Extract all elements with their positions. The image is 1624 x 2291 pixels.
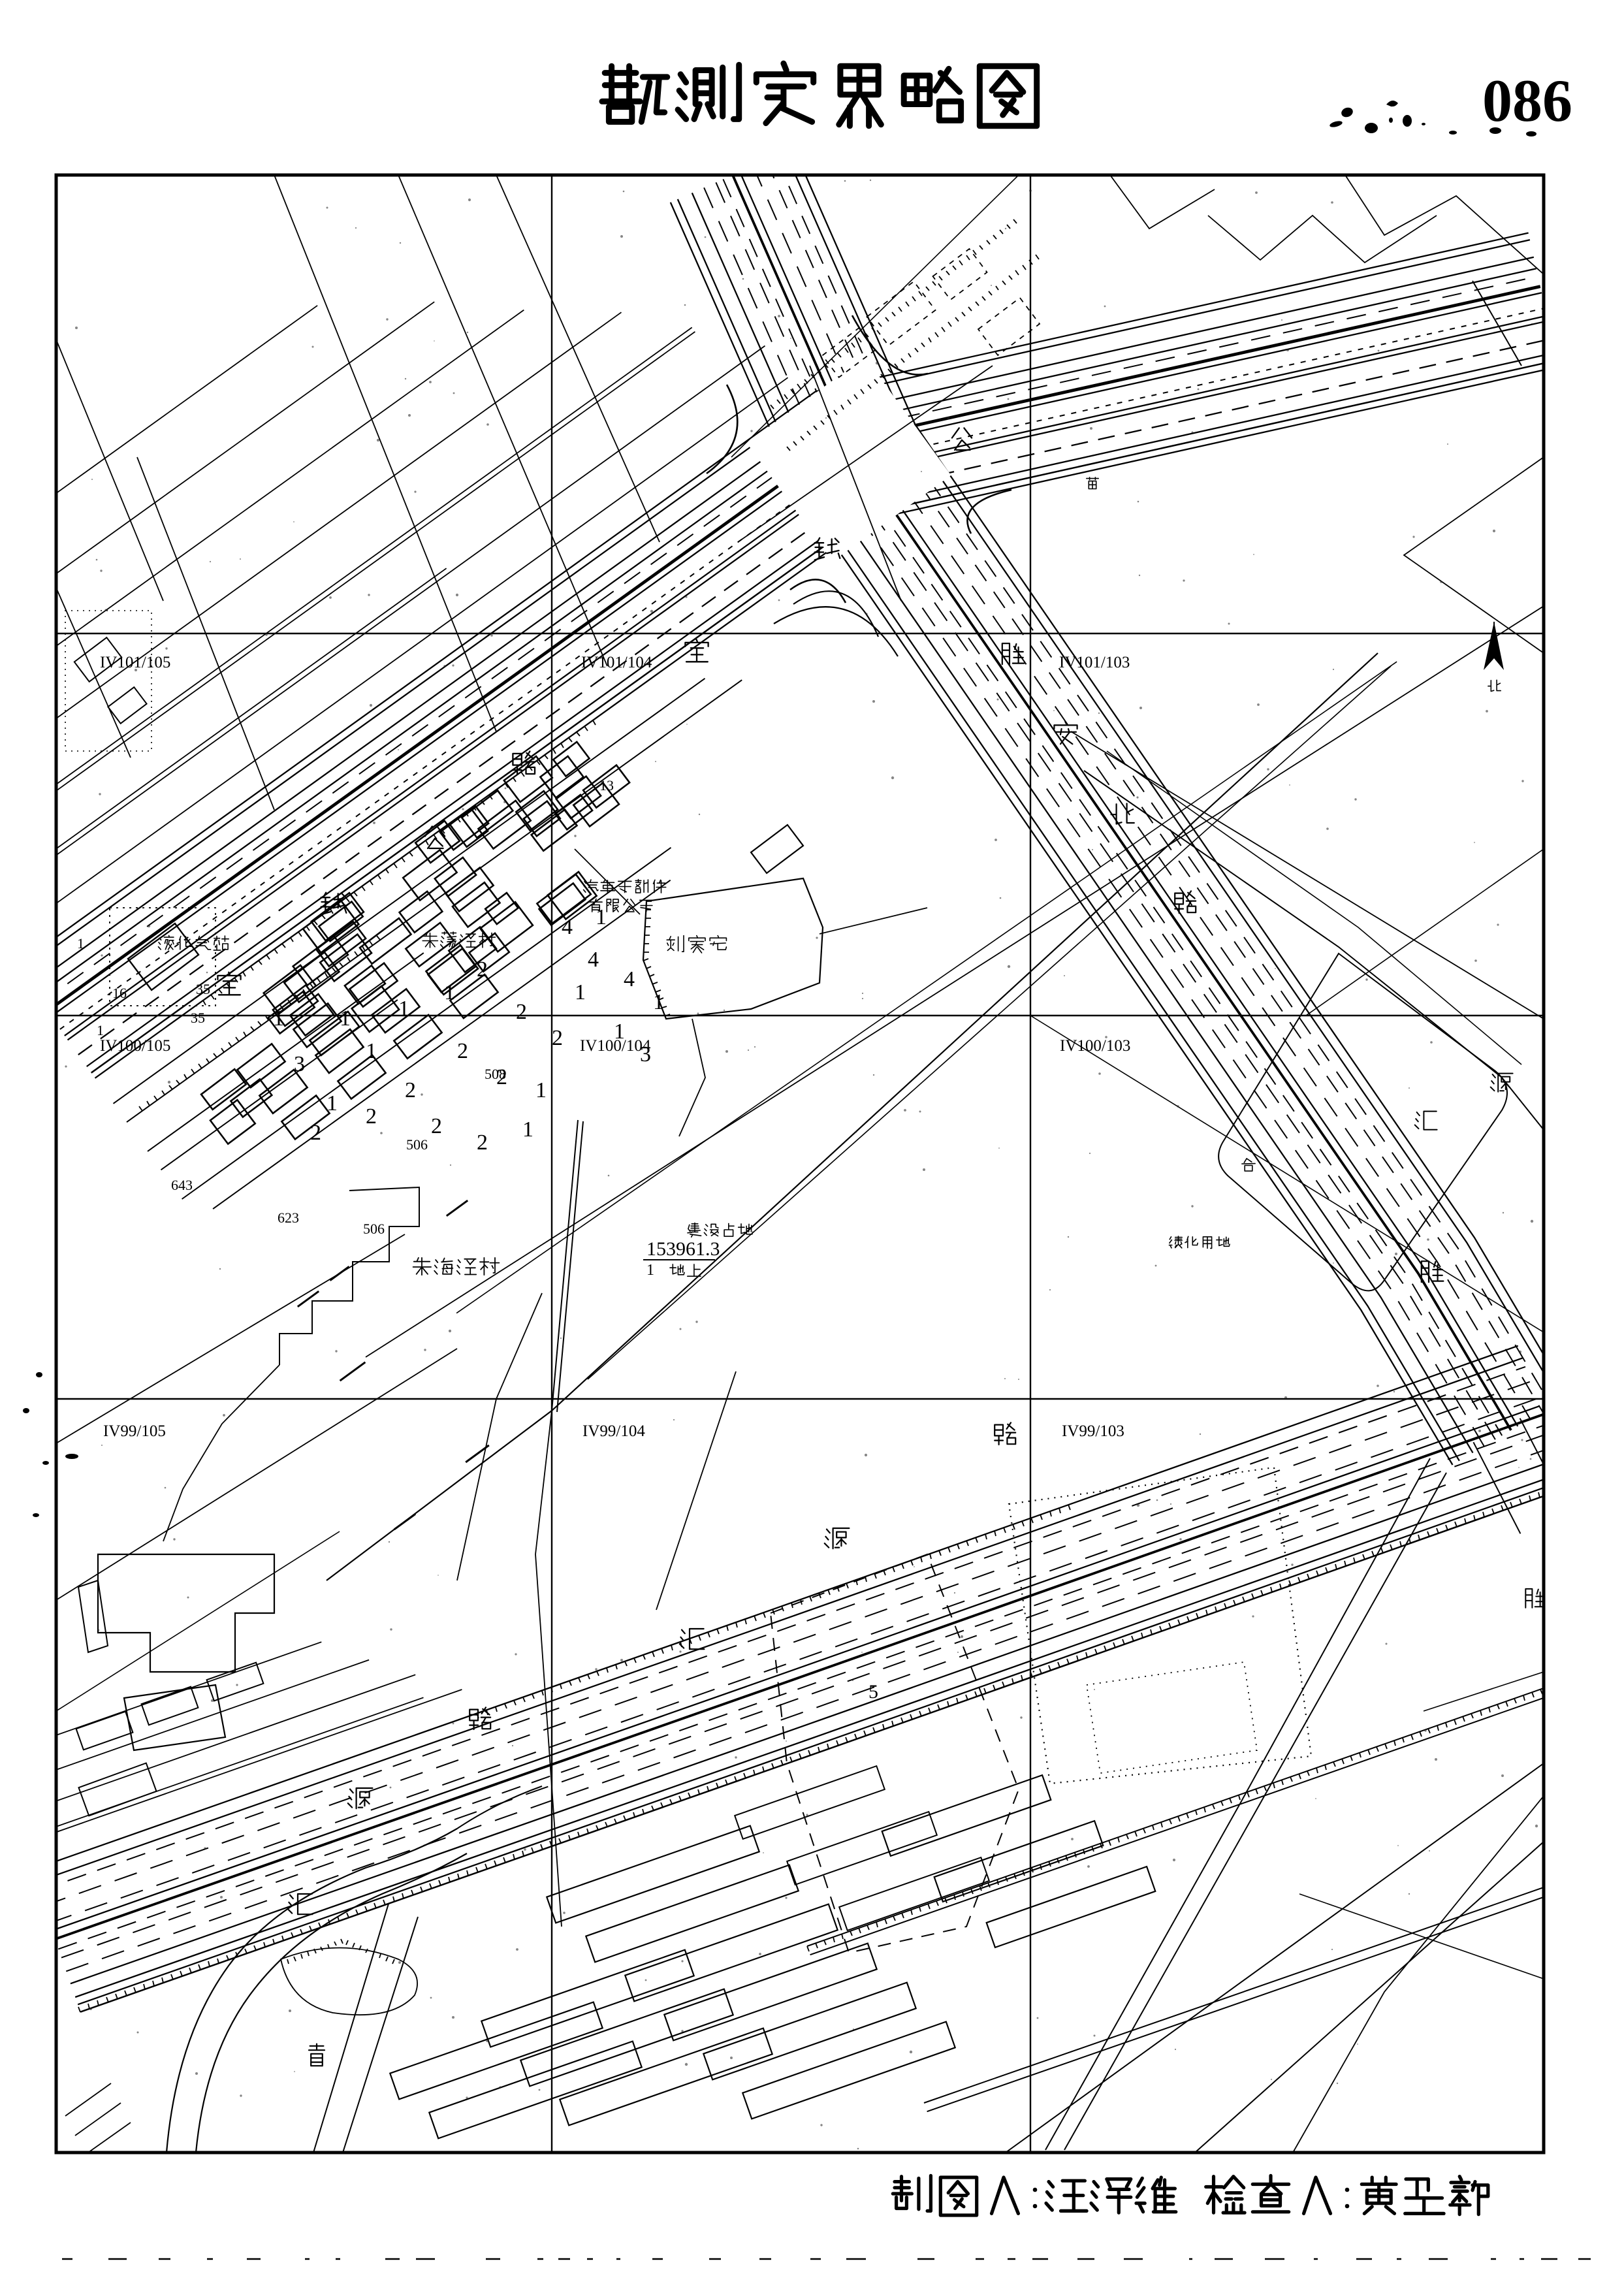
svg-text:1: 1: [273, 1006, 284, 1031]
svg-text:IV99/103: IV99/103: [1062, 1422, 1124, 1440]
svg-text:1: 1: [366, 1039, 377, 1063]
svg-text:508: 508: [485, 1066, 506, 1082]
svg-text:IV99/105: IV99/105: [103, 1422, 166, 1440]
svg-text:1: 1: [575, 980, 586, 1004]
svg-text:2: 2: [310, 1121, 321, 1145]
svg-text:3: 3: [294, 1052, 305, 1076]
svg-text:506: 506: [363, 1221, 385, 1237]
svg-text:086: 086: [1482, 67, 1572, 134]
svg-text:506: 506: [406, 1136, 428, 1153]
svg-text:153961.3: 153961.3: [646, 1238, 720, 1260]
svg-text:2: 2: [477, 1130, 488, 1155]
svg-text:1: 1: [326, 1091, 338, 1115]
svg-text:4: 4: [624, 967, 635, 991]
svg-text:2: 2: [516, 1000, 527, 1024]
svg-text:IV100/105: IV100/105: [100, 1037, 170, 1055]
svg-text:2: 2: [457, 1039, 468, 1063]
svg-text:2: 2: [366, 1104, 377, 1129]
svg-text:1: 1: [646, 1262, 654, 1279]
svg-text:1: 1: [522, 1117, 533, 1142]
svg-text:IV101/103: IV101/103: [1059, 654, 1130, 671]
svg-text:16: 16: [112, 985, 127, 1001]
svg-text:2: 2: [552, 1026, 563, 1050]
svg-text:13: 13: [599, 777, 614, 793]
svg-text:35: 35: [196, 981, 210, 997]
svg-text:1: 1: [340, 1006, 351, 1031]
svg-text:4: 4: [588, 948, 599, 972]
svg-text:1: 1: [444, 980, 455, 1004]
svg-text:1: 1: [97, 1022, 104, 1038]
svg-text:IV101/105: IV101/105: [100, 654, 170, 671]
svg-text:2: 2: [477, 957, 488, 982]
svg-text:IV99/104: IV99/104: [582, 1422, 645, 1440]
svg-text:3: 3: [640, 1042, 651, 1066]
svg-text:1: 1: [596, 905, 607, 929]
svg-text:643: 643: [171, 1177, 193, 1193]
svg-text:2: 2: [405, 1078, 416, 1102]
svg-text:4: 4: [562, 915, 573, 939]
svg-text:623: 623: [278, 1210, 299, 1226]
svg-text:1: 1: [398, 997, 409, 1021]
svg-text:1: 1: [614, 1019, 625, 1044]
svg-text:2: 2: [431, 1114, 442, 1138]
svg-text:35: 35: [191, 1010, 205, 1026]
svg-text:1: 1: [77, 935, 84, 952]
svg-text:5: 5: [868, 1681, 878, 1703]
svg-text:1: 1: [535, 1078, 547, 1102]
